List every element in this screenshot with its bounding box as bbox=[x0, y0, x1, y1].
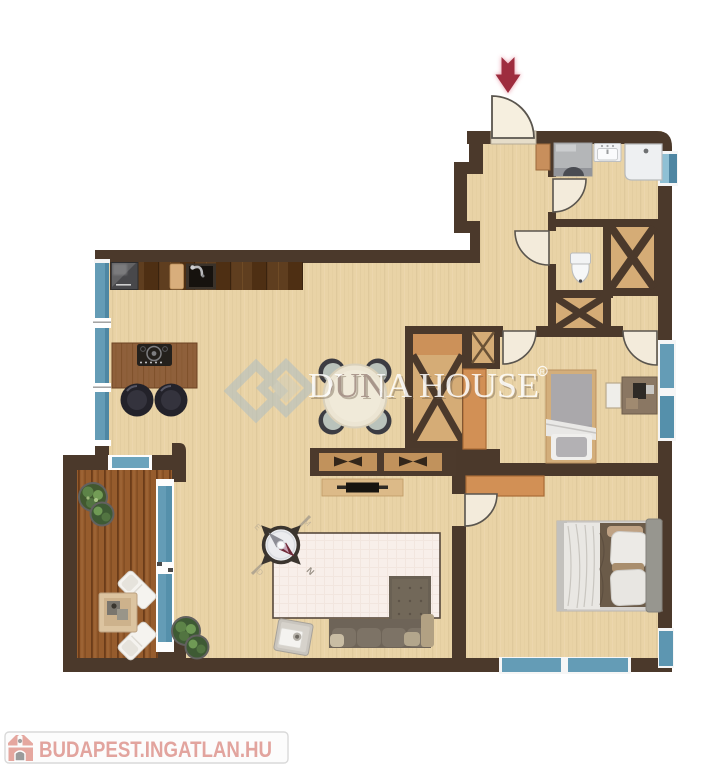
svg-text:R: R bbox=[540, 369, 545, 376]
svg-text:BUDAPEST.INGATLAN.HU: BUDAPEST.INGATLAN.HU bbox=[39, 737, 272, 762]
